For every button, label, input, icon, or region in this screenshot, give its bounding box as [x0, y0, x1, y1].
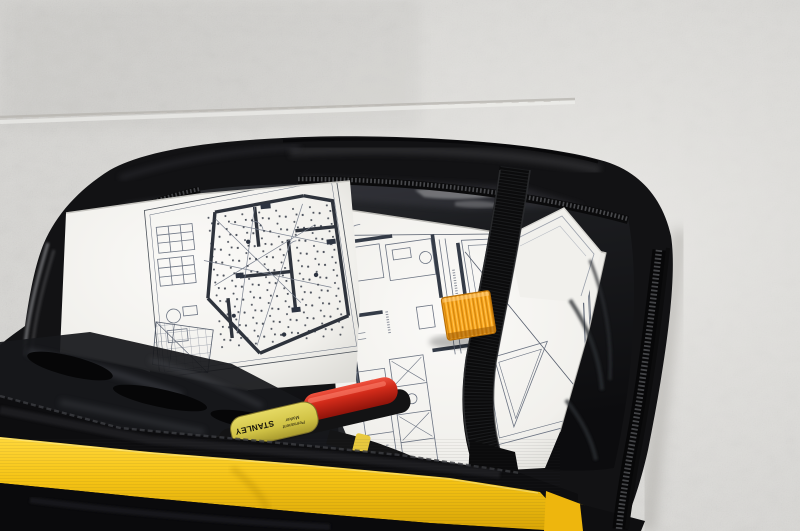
- photo-stanley-bag-blueprints: STANLEY Permanent Marker: [0, 0, 800, 531]
- photo-canvas: STANLEY Permanent Marker: [0, 0, 800, 531]
